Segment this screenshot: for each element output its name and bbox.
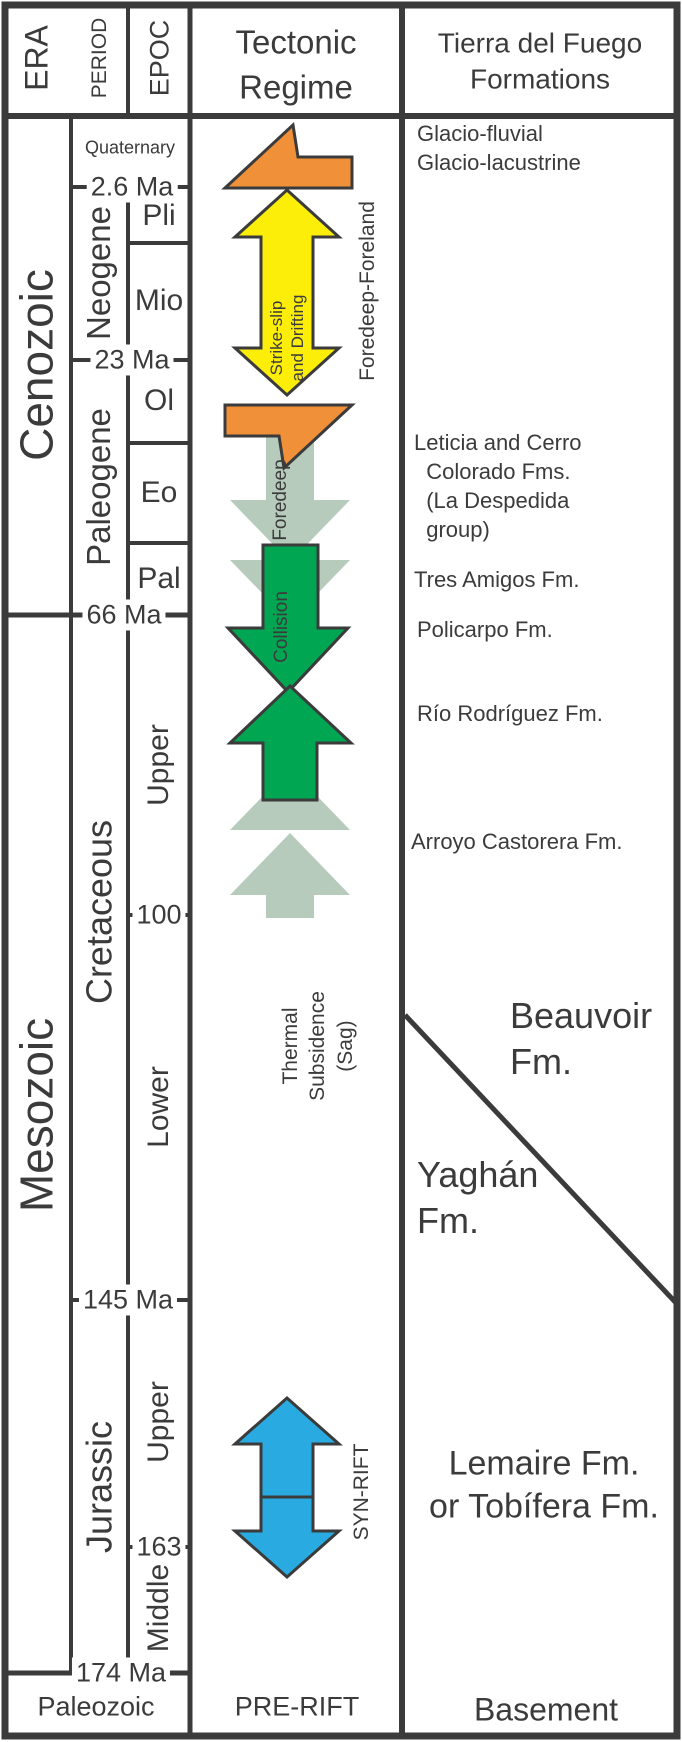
formation-arroyo-castorera: Arroyo Castorera Fm. [411, 829, 623, 854]
formation-lemaire-tobifera: Lemaire Fm. or Tobífera Fm. [429, 1443, 659, 1528]
epoch-eocene: Eo [141, 476, 178, 511]
foredeep-up-chevron-2 [230, 833, 350, 895]
epoch-pliocene: Pli [142, 199, 175, 234]
header-period: PERIOD [88, 18, 112, 99]
era-cenozoic: Cenozoic [11, 269, 64, 461]
tectonic-thermal-subsidence-label: Thermal Subsidence (Sag) [277, 991, 359, 1101]
tectonic-foredeep-foreland-label: Foredeep-Foreland [356, 201, 380, 381]
epoch-lower-cretaceous: Lower [142, 1066, 177, 1148]
tectonic-foredeep-label: Foredeep [270, 459, 292, 540]
period-quaternary: Quaternary [85, 138, 175, 159]
period-jurassic: Jurassic [78, 1421, 119, 1553]
period-cretaceous: Cretaceous [78, 820, 119, 1004]
formation-leticia-cerro-colorado: Leticia and Cerro Colorado Fms. (La Desp… [414, 428, 582, 544]
header-era: ERA [19, 25, 56, 91]
syn-rift-up-arrow [235, 1398, 339, 1497]
header-formations: Tierra del Fuego Formations [405, 26, 675, 99]
tectonic-syn-rift-label: SYN-RIFT [350, 1444, 374, 1541]
header-tectonic-regime: Tectonic Regime [191, 20, 401, 109]
age-tick-163: 163 [132, 1531, 185, 1562]
era-mesozoic: Mesozoic [11, 1018, 64, 1212]
age-tick-66ma: 66 Ma [82, 599, 165, 630]
epoch-upper-jurassic: Upper [142, 1381, 177, 1463]
stratigraphic-chart: ERA PERIOD EPOC Tectonic Regime Tierra d… [0, 0, 682, 1742]
epoch-oligocene: Ol [144, 384, 174, 419]
collision-arrows [228, 545, 351, 800]
tectonic-collision-label: Collision [271, 591, 293, 663]
formation-glacio: Glacio-fluvial Glacio-lacustrine [417, 120, 581, 177]
epoch-paleocene: Pal [137, 562, 180, 597]
syn-rift-arrows [235, 1398, 339, 1577]
formation-basement: Basement [474, 1692, 618, 1729]
collision-up-arrow [230, 686, 351, 800]
formation-yaghan: Yaghán Fm. [417, 1152, 538, 1244]
foredeep-up-arrow-shaft [266, 890, 314, 918]
formation-beauvoir: Beauvoir Fm. [510, 993, 652, 1085]
era-paleozoic: Paleozoic [37, 1691, 154, 1722]
tectonic-strike-slip-label: Strike-slip and Drifting [266, 295, 309, 382]
age-tick-23ma: 23 Ma [90, 344, 173, 375]
age-tick-100: 100 [132, 899, 185, 930]
formation-tres-amigos: Tres Amigos Fm. [414, 567, 579, 592]
age-tick-2-6ma: 2.6 Ma [87, 171, 178, 202]
strike-slip-half-arrow-top [225, 125, 352, 188]
epoch-miocene: Mio [135, 284, 183, 319]
header-epoch: EPOC [144, 20, 175, 97]
period-neogene: Neogene [80, 206, 118, 340]
tectonic-pre-rift-label: PRE-RIFT [235, 1691, 360, 1722]
period-paleogene: Paleogene [80, 408, 118, 566]
age-tick-174ma: 174 Ma [72, 1657, 170, 1688]
epoch-middle-jurassic: Middle [142, 1564, 177, 1652]
epoch-upper-cretaceous: Upper [142, 724, 177, 806]
formation-policarpo: Policarpo Fm. [417, 617, 553, 642]
formation-rio-rodriguez: Río Rodríguez Fm. [417, 701, 603, 726]
age-tick-145ma: 145 Ma [79, 1284, 177, 1315]
syn-rift-down-arrow [235, 1497, 339, 1577]
